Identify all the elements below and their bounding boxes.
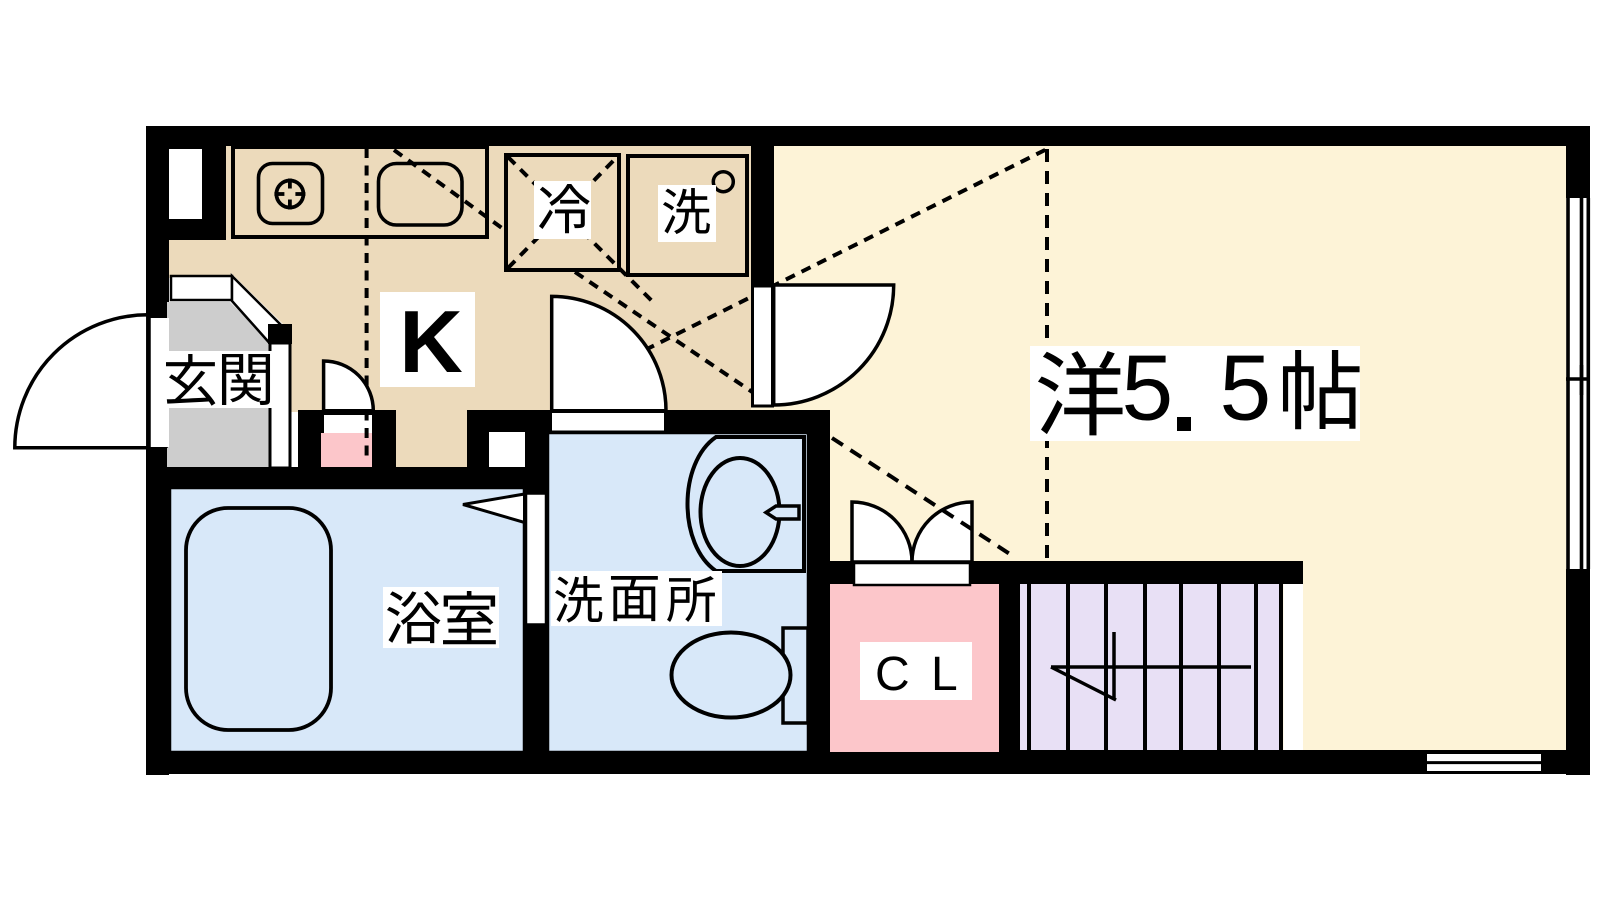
svg-text:K: K — [399, 292, 463, 391]
svg-text:C: C — [875, 648, 910, 701]
svg-text:5: 5 — [1220, 336, 1272, 440]
svg-text:5: 5 — [1122, 336, 1174, 440]
svg-text:L: L — [931, 648, 958, 701]
